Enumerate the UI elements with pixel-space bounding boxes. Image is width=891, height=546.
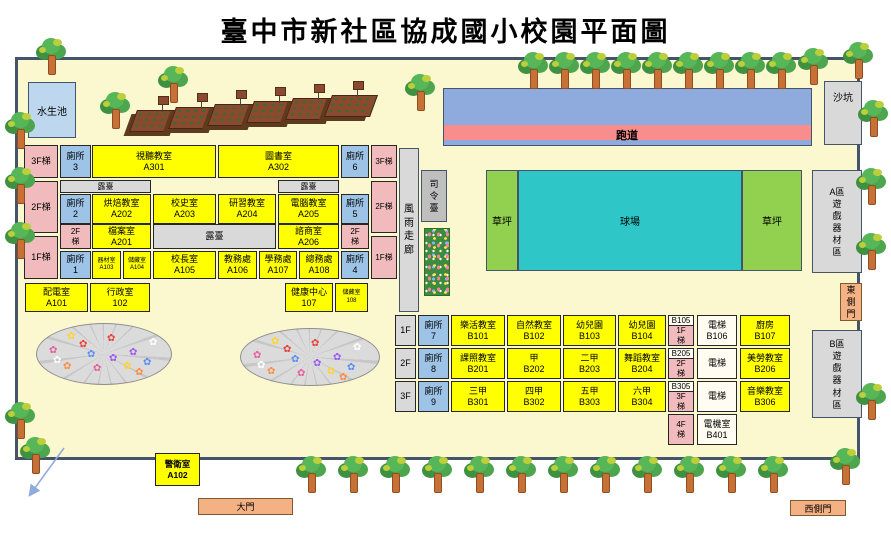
room-a106: 教務處A106: [218, 251, 257, 279]
room-code: B301: [467, 397, 488, 408]
room-a107: 學務處A107: [259, 251, 297, 279]
terrace-right: 露臺: [278, 180, 339, 193]
room-name: 二甲: [580, 353, 598, 364]
room-code: A302: [268, 162, 289, 173]
water-pond-label: 水生池: [37, 103, 67, 118]
room-name: 美勞教室: [747, 353, 783, 364]
tree-icon: [674, 456, 704, 492]
room-name: 課照教室: [460, 353, 496, 364]
room-a203: 校史室A203: [153, 194, 216, 224]
room-name: 電梯: [708, 391, 726, 402]
stair-code: B305: [669, 382, 693, 393]
room-b303: 五甲B303: [563, 381, 616, 412]
room-a202: 烘焙教室A202: [92, 194, 151, 224]
room-102: 行政室102: [90, 283, 150, 312]
guard-room: 警衛室 A102: [155, 453, 200, 486]
stair-label: 2F梯: [347, 227, 363, 246]
room-name: 學務處: [264, 254, 291, 265]
room-name: 廁所: [66, 151, 84, 162]
room-code: A103: [99, 265, 113, 273]
toilet-1: 廁所1: [60, 251, 91, 279]
stair-b305: B3053F梯: [668, 381, 694, 412]
area-b-line1: B區: [829, 337, 844, 350]
flower-icon: ✿: [267, 367, 275, 377]
tree-icon: [5, 112, 35, 148]
lawn-right: 草坪: [742, 170, 802, 271]
tree-icon: [296, 456, 326, 492]
flower-planter-left: ✿✿✿✿✿✿✿✿✿✿✿✿✿✿: [36, 323, 172, 385]
room-name: 總務處: [305, 254, 332, 265]
room-code: B203: [579, 364, 600, 375]
floor-label-2f: 2F: [395, 348, 416, 379]
flower-icon: ✿: [257, 361, 265, 371]
room-b107: 廚房B107: [740, 315, 790, 346]
room-code: 4: [352, 265, 357, 276]
room-code: A204: [236, 209, 257, 220]
tree-icon: [548, 456, 578, 492]
tree-icon: [758, 456, 788, 492]
room-name: 烘焙教室: [103, 198, 139, 209]
stair-b105: B1051F梯: [668, 315, 694, 346]
room-a101: 配電室A101: [25, 283, 88, 312]
room-107: 健康中心107: [285, 283, 333, 312]
room-code: 108: [346, 298, 356, 306]
stair-label: 4F梯: [673, 420, 689, 439]
podium-label: 司令臺: [428, 178, 440, 214]
toilet-5: 廁所5: [341, 194, 369, 224]
room-code: B304: [631, 397, 652, 408]
room-code: A205: [298, 209, 319, 220]
flower-icon: ✿: [143, 358, 151, 368]
room-name: 樂活教室: [460, 320, 496, 331]
flower-icon: ✿: [333, 353, 341, 363]
toilet-8: 廁所8: [418, 348, 449, 379]
room-a105: 校長室A105: [153, 251, 216, 279]
room-a201: 檔案室A201: [92, 224, 151, 249]
flower-icon: ✿: [347, 363, 355, 373]
flower-icon: ✿: [291, 355, 299, 365]
room-code: A101: [46, 298, 67, 309]
campus-map: 臺中市新社區協成國小校園平面圖 水生池 跑道 沙坑 草坪 球場 草坪 A區 遊戲…: [0, 0, 891, 546]
room-code: A206: [298, 237, 319, 248]
page-title: 臺中市新社區協成國小校園平面圖: [0, 10, 891, 49]
room-name: 音樂教室: [747, 386, 783, 397]
room-b202: 甲B202: [507, 348, 561, 379]
toilet-7: 廁所7: [418, 315, 449, 346]
stair-label: 3F梯: [31, 156, 51, 167]
tree-icon: [5, 402, 35, 438]
tree-icon: [798, 48, 828, 84]
stair-label: 3F梯: [674, 392, 688, 411]
room-name: 廁所: [346, 151, 364, 162]
room-name: 儲藏室: [128, 258, 146, 266]
toilet-6: 廁所6: [341, 145, 369, 178]
room-code: A107: [267, 265, 288, 276]
flower-icon: ✿: [149, 338, 157, 348]
stair-label-wrap: 2F梯: [669, 359, 693, 378]
room-name: 器材室: [97, 258, 115, 266]
room-code: 9: [431, 397, 436, 408]
room-name: 甲: [529, 353, 538, 364]
play-equipment-area-a: A區 遊戲器材區: [812, 170, 862, 273]
stair-label: 1F梯: [674, 326, 688, 345]
room-name: 校史室: [171, 198, 198, 209]
room-b401: 電機室B401: [697, 414, 737, 445]
corridor-label: 風雨走廊: [403, 203, 415, 257]
tree-icon: [20, 437, 50, 473]
room-name: 研習教室: [229, 198, 265, 209]
room-code: 102: [112, 298, 127, 309]
room-name: 電梯: [708, 320, 726, 331]
sand-pit-label: 沙坑: [833, 89, 853, 104]
area-a-line1: A區: [829, 185, 844, 198]
room-code: 2: [73, 209, 78, 220]
flower-icon: ✿: [311, 339, 319, 349]
stair-code: B205: [669, 349, 693, 360]
room-code: 107: [301, 298, 316, 309]
room-b206: 美勞教室B206: [740, 348, 790, 379]
main-gate-label: 大門: [236, 500, 254, 513]
room-a301: 視聽教室A301: [92, 145, 216, 178]
flower-icon: ✿: [79, 340, 87, 350]
room-name: 舞蹈教室: [624, 353, 660, 364]
play-equipment-area-b: B區 遊戲器材區: [812, 330, 862, 418]
podium-stage: 司令臺: [421, 170, 447, 222]
sand-pit: 沙坑: [824, 81, 862, 145]
court-label: 球場: [620, 213, 640, 228]
tree-icon: [338, 456, 368, 492]
room-name: 廁所: [424, 353, 442, 364]
room-b201: 課照教室B201: [451, 348, 505, 379]
tree-icon: [422, 456, 452, 492]
west-gate: 西側門: [790, 500, 846, 516]
stair-a-right-1f: 1F梯: [371, 236, 397, 279]
tree-icon: [735, 52, 765, 88]
room-b102: 自然教室B102: [507, 315, 561, 346]
tree-icon: [642, 52, 672, 88]
tree-icon: [405, 74, 435, 110]
flower-icon: ✿: [327, 367, 335, 377]
floor-label: 1F: [400, 325, 411, 336]
tree-icon: [843, 42, 873, 78]
room-name: 廁所: [66, 254, 84, 265]
room-a204: 研習教室A204: [218, 194, 276, 224]
room-108: 儲藏室108: [335, 283, 368, 312]
room-code: B306: [754, 397, 775, 408]
flower-icon: ✿: [63, 362, 71, 372]
floor-label: 2F: [400, 358, 411, 369]
room-b304: 六甲B304: [618, 381, 666, 412]
room-code: B202: [523, 364, 544, 375]
room-a104: 儲藏室A104: [123, 251, 151, 279]
tree-icon: [580, 52, 610, 88]
room-name: 六甲: [633, 386, 651, 397]
tree-icon: [5, 167, 35, 203]
stair-label: 2F梯: [68, 227, 84, 246]
flower-icon: ✿: [339, 373, 347, 383]
room-name: 健康中心: [291, 287, 327, 298]
flower-wall: [424, 228, 450, 296]
stair-b205: B2052F梯: [668, 348, 694, 379]
room-code: B104: [631, 331, 652, 342]
area-b-rest: 遊戲器材區: [831, 350, 843, 411]
room-name: 幼兒園: [576, 320, 603, 331]
room-code: B201: [467, 364, 488, 375]
room-code: B303: [579, 397, 600, 408]
tree-icon: [766, 52, 796, 88]
terrace-left: 露臺: [60, 180, 151, 193]
tree-icon: [5, 222, 35, 258]
running-track: 跑道: [443, 88, 812, 146]
tree-icon: [100, 92, 130, 128]
room-b306: 音樂教室B306: [740, 381, 790, 412]
flower-icon: ✿: [129, 348, 137, 358]
room-name: 警衛室: [165, 459, 191, 469]
room-b103: 幼兒園B103: [563, 315, 616, 346]
room-a103: 器材室A103: [92, 251, 121, 279]
room-code: 5: [352, 209, 357, 220]
room-name: 電腦教室: [290, 198, 326, 209]
floor-label: 3F: [400, 391, 411, 402]
stair-label: 2F梯: [674, 359, 688, 378]
room-code: B103: [579, 331, 600, 342]
room-name: 廚房: [756, 320, 774, 331]
lawn-left-label: 草坪: [492, 213, 512, 228]
garden-bed: [326, 81, 378, 125]
tree-icon: [856, 383, 886, 419]
room-code: B101: [467, 331, 488, 342]
room-code: A301: [143, 162, 164, 173]
tree-icon: [856, 168, 886, 204]
terrace-label: 露臺: [205, 231, 223, 242]
tree-icon: [704, 52, 734, 88]
room-name: 三甲: [469, 386, 487, 397]
room-name: 校長室: [171, 254, 198, 265]
flower-icon: ✿: [353, 343, 361, 353]
flower-icon: ✿: [93, 364, 101, 374]
room-code: A203: [174, 209, 195, 220]
flower-icon: ✿: [107, 334, 115, 344]
room-code: B204: [631, 364, 652, 375]
flower-icon: ✿: [109, 354, 117, 364]
room-name: 廁所: [424, 386, 442, 397]
east-gate-label: 東側門: [845, 284, 857, 320]
toilet-4: 廁所4: [341, 251, 369, 279]
room-name: 配電室: [43, 287, 70, 298]
room-code: 7: [431, 331, 436, 342]
tree-icon: [716, 456, 746, 492]
lawn-left: 草坪: [486, 170, 518, 271]
tree-icon: [830, 448, 860, 484]
terrace-label: 露臺: [301, 182, 317, 192]
tree-icon: [518, 52, 548, 88]
room-name: 五甲: [580, 386, 598, 397]
stair-b-4f: 4F梯: [668, 414, 694, 445]
room-code: A104: [130, 265, 144, 273]
tree-icon: [380, 456, 410, 492]
covered-corridor: 風雨走廊: [399, 148, 419, 312]
tree-icon: [464, 456, 494, 492]
room-code: B106: [706, 331, 727, 342]
west-gate-label: 西側門: [804, 502, 831, 515]
tree-icon: [632, 456, 662, 492]
elevator-b106: 電梯B106: [697, 315, 737, 346]
toilet-3: 廁所3: [60, 145, 91, 178]
room-name: 儲藏室: [342, 290, 360, 298]
room-code: 6: [352, 162, 357, 173]
east-gate: 東側門: [840, 283, 862, 321]
room-a302: 圖書室A302: [218, 145, 339, 178]
room-code: A102: [167, 470, 187, 480]
toilet-2: 廁所2: [60, 194, 91, 224]
track-label: 跑道: [616, 127, 638, 143]
terrace-center: 露臺: [153, 224, 276, 249]
room-code: B401: [706, 430, 727, 441]
flower-icon: ✿: [283, 345, 291, 355]
room-name: 視聽教室: [136, 151, 172, 162]
room-b204: 舞蹈教室B204: [618, 348, 666, 379]
room-code: A202: [111, 209, 132, 220]
room-code: B102: [523, 331, 544, 342]
room-a205: 電腦教室A205: [278, 194, 339, 224]
room-name: 電機室: [703, 419, 730, 430]
room-code: 3: [73, 162, 78, 173]
water-pond: 水生池: [28, 82, 76, 138]
tree-icon: [590, 456, 620, 492]
room-code: A105: [174, 265, 195, 276]
stair-label-wrap: 1F梯: [669, 326, 693, 345]
room-code: 8: [431, 364, 436, 375]
room-code: B302: [523, 397, 544, 408]
room-name: 廁所: [346, 198, 364, 209]
room-name: 廁所: [424, 320, 442, 331]
room-name: 幼兒園: [628, 320, 655, 331]
tree-icon: [611, 52, 641, 88]
room-name: 電梯: [708, 358, 726, 369]
terrace-label: 露臺: [98, 182, 114, 192]
room-name: 諮商室: [295, 226, 322, 237]
room-b301: 三甲B301: [451, 381, 505, 412]
room-name: 四甲: [525, 386, 543, 397]
tree-icon: [36, 38, 66, 74]
stair-label: 1F梯: [375, 253, 392, 263]
flower-icon: ✿: [67, 332, 75, 342]
flower-icon: ✿: [53, 356, 61, 366]
room-name: 圖書室: [265, 151, 292, 162]
elevator-3f: 電梯: [697, 381, 737, 412]
lawn-right-label: 草坪: [762, 213, 782, 228]
flower-icon: ✿: [271, 337, 279, 347]
room-code: A201: [111, 237, 132, 248]
stair-a-inner-left-2f: 2F梯: [60, 224, 91, 249]
room-b104: 幼兒園B104: [618, 315, 666, 346]
room-code: A106: [227, 265, 248, 276]
stair-a-inner-right-2f: 2F梯: [341, 224, 369, 249]
tree-icon: [858, 100, 888, 136]
room-name: 教務處: [224, 254, 251, 265]
flower-icon: ✿: [87, 350, 95, 360]
toilet-9: 廁所9: [418, 381, 449, 412]
room-code: A108: [308, 265, 329, 276]
stair-label: 3F梯: [375, 157, 392, 167]
flower-icon: ✿: [297, 369, 305, 379]
room-name: 廁所: [346, 254, 364, 265]
flower-icon: ✿: [123, 362, 131, 372]
room-code: B206: [754, 364, 775, 375]
stair-code: B105: [669, 316, 693, 327]
room-name: 檔案室: [108, 226, 135, 237]
room-name: 行政室: [106, 287, 133, 298]
flower-icon: ✿: [135, 368, 143, 378]
tree-icon: [673, 52, 703, 88]
area-a-rest: 遊戲器材區: [831, 198, 843, 259]
room-code: B107: [754, 331, 775, 342]
room-b101: 樂活教室B101: [451, 315, 505, 346]
tree-icon: [856, 233, 886, 269]
room-code: 1: [73, 265, 78, 276]
ball-court: 球場: [518, 170, 742, 271]
room-a108: 總務處A108: [299, 251, 339, 279]
room-b302: 四甲B302: [507, 381, 561, 412]
tree-icon: [549, 52, 579, 88]
stair-label-wrap: 3F梯: [669, 392, 693, 411]
main-gate: 大門: [198, 498, 293, 515]
stair-label: 2F梯: [375, 202, 392, 212]
floor-label-3f: 3F: [395, 381, 416, 412]
floor-label-1f: 1F: [395, 315, 416, 346]
room-a206: 諮商室A206: [278, 224, 339, 249]
elevator-2f: 電梯: [697, 348, 737, 379]
stair-label: 2F梯: [31, 202, 51, 213]
room-name: 廁所: [66, 198, 84, 209]
stair-a-right-2f: 2F梯: [371, 181, 397, 233]
flower-planter-right: ✿✿✿✿✿✿✿✿✿✿✿✿✿✿: [240, 328, 380, 386]
tree-icon: [506, 456, 536, 492]
room-name: 自然教室: [516, 320, 552, 331]
room-b203: 二甲B203: [563, 348, 616, 379]
flower-icon: ✿: [313, 359, 321, 369]
stair-a-right-3f: 3F梯: [371, 145, 397, 178]
